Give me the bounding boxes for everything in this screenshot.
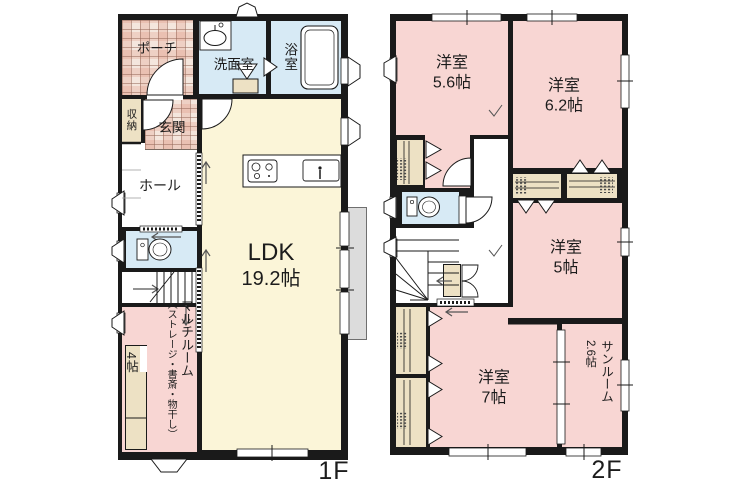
western-room-5-label: 洋室 5帖	[550, 238, 582, 277]
sunroom-label: サンルーム 2.6帖	[572, 340, 614, 450]
floorplan-canvas: ポーチ 洗面室 浴室 収納 玄関 ホール LDK 19.2帖 マルチルーム （ス…	[0, 0, 735, 500]
multi-room-label: マルチルーム （ストレージ・書斎・物干し）	[148, 299, 194, 449]
ldk-size: 19.2帖	[242, 267, 301, 291]
sunroom-size: 2.6帖	[582, 340, 598, 450]
storage-label: 収納	[125, 109, 138, 132]
closet-7-lower	[396, 378, 426, 447]
western-room-56-label: 洋室 5.6帖	[433, 53, 471, 92]
porch-label: ポーチ	[137, 41, 178, 57]
toilet1-room	[126, 231, 197, 268]
multi-room-name: マルチルーム	[177, 299, 194, 449]
multi-closet-notch	[140, 346, 147, 372]
sunroom-name: サンルーム	[597, 340, 614, 450]
ldk-label: LDK 19.2帖	[242, 238, 301, 292]
ldk-name: LDK	[242, 238, 301, 267]
toilet2-room	[402, 192, 459, 224]
closet-center-right	[567, 174, 617, 198]
closet-center-left	[513, 174, 561, 198]
bathroom-label: 浴室	[281, 43, 297, 72]
room2-size: 6.2帖	[545, 96, 583, 116]
room2-name: 洋室	[545, 76, 583, 96]
room4-size: 7帖	[478, 388, 510, 408]
closet-56	[396, 139, 424, 186]
washroom-label: 洗面室	[214, 57, 255, 73]
western-room-56-nook	[425, 135, 470, 188]
stair-hall-closet	[443, 264, 461, 297]
room4-name: 洋室	[478, 368, 510, 388]
room3-name: 洋室	[550, 238, 582, 258]
porch-room	[122, 20, 193, 95]
multi-room-size: 4帖	[122, 352, 141, 373]
entrance-label: 玄関	[159, 120, 186, 136]
room1-name: 洋室	[433, 53, 471, 73]
western-room-62-label: 洋室 6.2帖	[545, 76, 583, 115]
floor2-label: 2F	[591, 455, 622, 486]
room3-size: 5帖	[550, 258, 582, 278]
floor1-label: 1F	[318, 456, 349, 487]
multi-room-note: （ストレージ・書斎・物干し）	[164, 299, 177, 449]
western-room-7-label: 洋室 7帖	[478, 368, 510, 407]
room1-size: 5.6帖	[433, 73, 471, 93]
closet-7-upper	[396, 307, 426, 374]
hall-label: ホール	[139, 177, 181, 194]
